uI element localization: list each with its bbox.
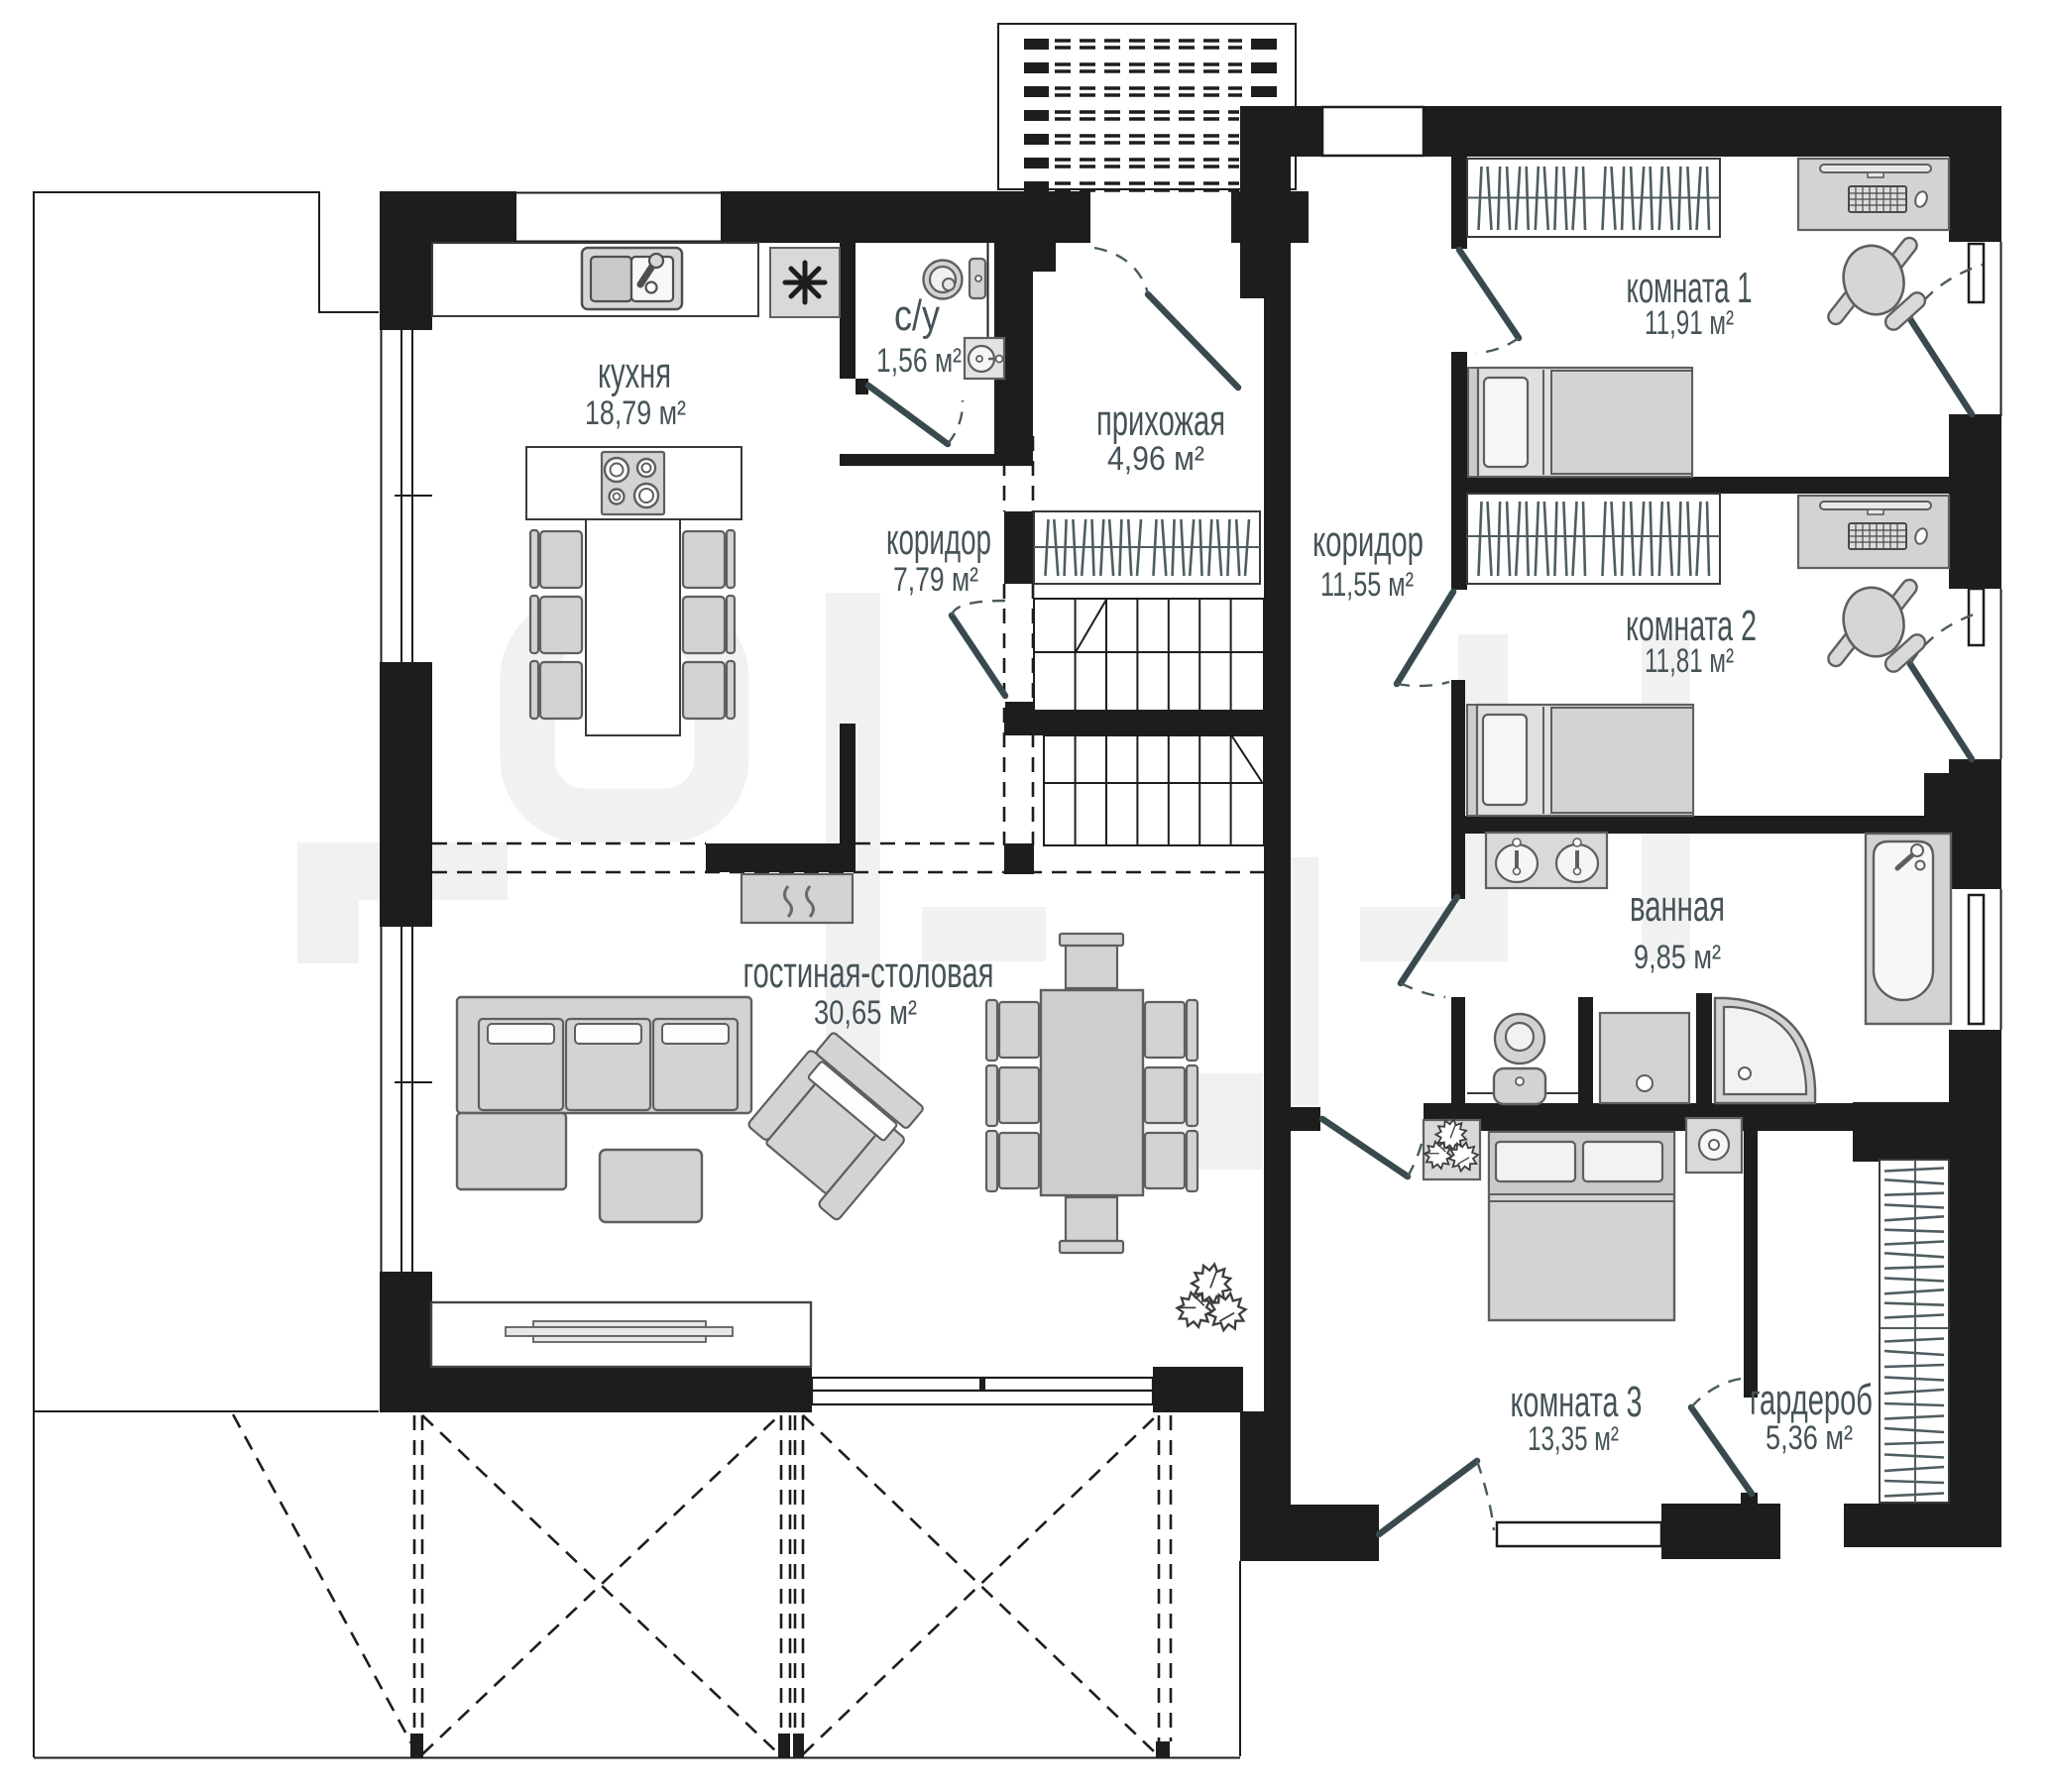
svg-text:гардероб: гардероб	[1750, 1376, 1873, 1424]
svg-text:прихожая: прихожая	[1096, 396, 1225, 445]
svg-text:11,81 м²: 11,81 м²	[1645, 642, 1734, 680]
svg-text:5,36 м²: 5,36 м²	[1766, 1419, 1853, 1457]
svg-text:комната 3: комната 3	[1511, 1378, 1643, 1426]
svg-text:30,65 м²: 30,65 м²	[814, 994, 917, 1032]
svg-text:ванная: ванная	[1630, 882, 1725, 931]
svg-text:18,79 м²: 18,79 м²	[585, 394, 686, 432]
svg-text:13,35 м²: 13,35 м²	[1528, 1420, 1619, 1458]
svg-text:коридор: коридор	[1312, 517, 1424, 566]
svg-text:4,96 м²: 4,96 м²	[1107, 440, 1204, 478]
svg-text:11,55 м²: 11,55 м²	[1320, 566, 1414, 604]
svg-text:кухня: кухня	[598, 349, 671, 397]
svg-text:коридор: коридор	[886, 515, 991, 564]
svg-text:с/у: с/у	[894, 291, 940, 340]
svg-text:1,56 м²: 1,56 м²	[876, 342, 962, 380]
svg-text:7,79 м²: 7,79 м²	[893, 561, 978, 599]
svg-text:гостиная-столовая: гостиная-столовая	[743, 949, 994, 997]
svg-text:9,85 м²: 9,85 м²	[1634, 939, 1721, 976]
svg-text:11,91 м²: 11,91 м²	[1645, 304, 1734, 342]
